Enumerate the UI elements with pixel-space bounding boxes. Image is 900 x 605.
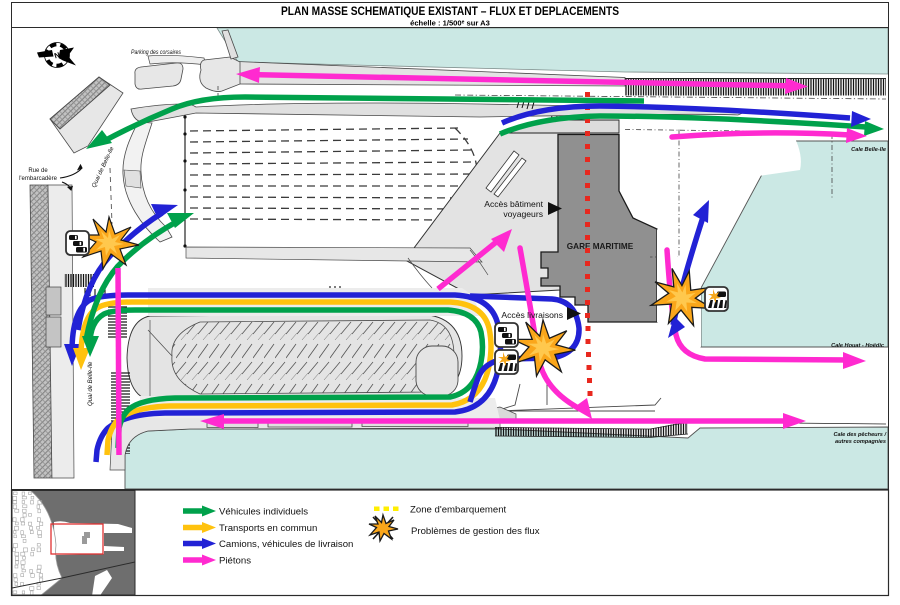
svg-text:l'embarcadère: l'embarcadère bbox=[19, 176, 57, 182]
svg-text:Parking des corsaires: Parking des corsaires bbox=[131, 50, 181, 56]
svg-text:Véhicules individuels: Véhicules individuels bbox=[219, 507, 308, 518]
svg-text:Accès livraisons: Accès livraisons bbox=[501, 310, 563, 320]
svg-text:Rue de: Rue de bbox=[28, 168, 48, 174]
svg-text:Camions, véhicules de livraiso: Camions, véhicules de livraison bbox=[219, 539, 353, 550]
svg-text:Transports en commun: Transports en commun bbox=[219, 523, 317, 534]
svg-text:Problèmes de gestion des flux: Problèmes de gestion des flux bbox=[411, 526, 540, 537]
svg-text:Piétons: Piétons bbox=[219, 556, 251, 567]
svg-text:Quai de Belle-Ile: Quai de Belle-Ile bbox=[88, 361, 94, 406]
svg-text:Accès bâtiment: Accès bâtiment bbox=[484, 199, 543, 209]
svg-text:autres compagnies: autres compagnies bbox=[835, 439, 886, 445]
svg-text:Cale Belle-Ile: Cale Belle-Ile bbox=[851, 147, 886, 153]
svg-text:voyageurs: voyageurs bbox=[503, 209, 543, 219]
svg-text:échelle : 1/500e sur A3: échelle : 1/500e sur A3 bbox=[410, 19, 490, 28]
svg-text:Cale Houat - Hoëdic: Cale Houat - Hoëdic bbox=[831, 343, 885, 349]
svg-text:Cale des pêcheurs /: Cale des pêcheurs / bbox=[833, 432, 887, 438]
svg-text:PLAN MASSE SCHEMATIQUE EXISTAN: PLAN MASSE SCHEMATIQUE EXISTANT – FLUX E… bbox=[281, 4, 619, 18]
svg-text:Zone d'embarquement: Zone d'embarquement bbox=[410, 505, 507, 516]
svg-text:GARE MARITIME: GARE MARITIME bbox=[567, 242, 634, 251]
